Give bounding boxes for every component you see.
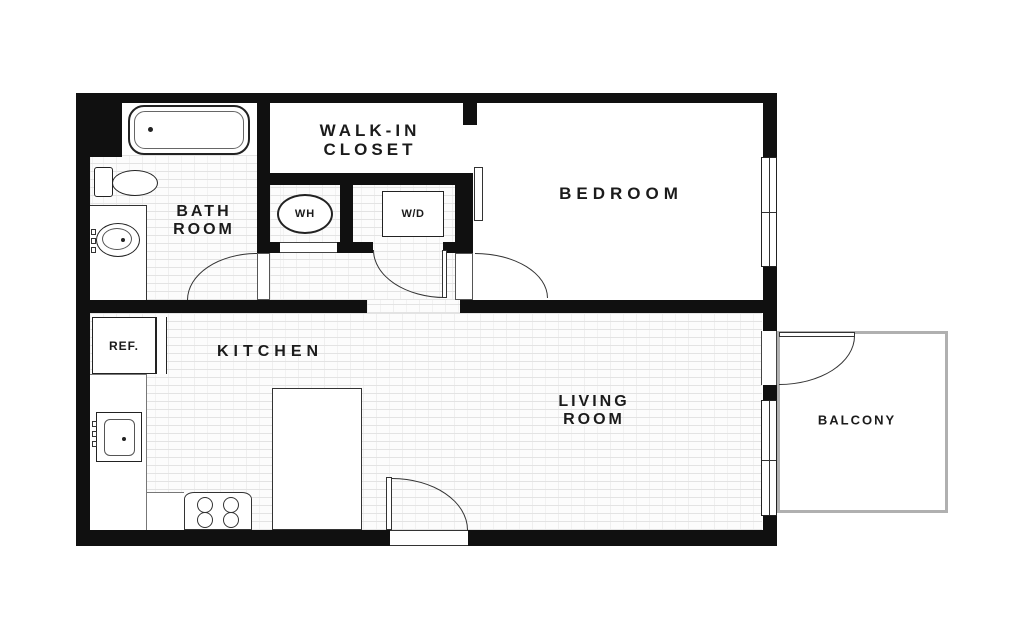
bathroom-line1: BATH <box>173 203 235 221</box>
bath-sink-knob-2 <box>91 238 96 244</box>
bathtub <box>128 105 250 155</box>
wall-closet-stub <box>463 103 477 125</box>
wall-closets-bottom-b <box>337 242 373 253</box>
entry-door-leaf <box>386 477 392 530</box>
bathroom-sink-basin <box>102 228 132 250</box>
bathroom-door-jamb <box>257 253 270 300</box>
kitchen-sink-knob-1 <box>92 421 97 427</box>
wall-corner-chunk <box>90 103 122 157</box>
refrigerator-label: REF. <box>109 339 139 353</box>
living-line1: LIVING <box>558 393 629 411</box>
wh-closet-opening <box>280 242 337 253</box>
balcony-door-opening <box>761 331 777 385</box>
washer-dryer-label: W/D <box>402 208 425 220</box>
bathroom-line2: ROOM <box>173 221 235 239</box>
kitchen-sink-knob-2 <box>92 431 97 437</box>
stove <box>184 492 252 530</box>
refrigerator: REF. <box>92 317 156 374</box>
bedroom-window-divider <box>762 212 776 213</box>
living-room-window <box>761 400 777 516</box>
bathroom-sink <box>96 223 140 257</box>
wall-mid-right <box>460 300 777 313</box>
bath-sink-knob-1 <box>91 229 96 235</box>
wall-closets-top <box>257 173 473 185</box>
room-label-living-room: LIVING ROOM <box>558 393 629 429</box>
room-label-kitchen: KITCHEN <box>217 343 323 361</box>
water-heater-circle: WH <box>277 194 333 234</box>
living-window-divider <box>762 460 776 461</box>
wall-closets-bottom-a <box>257 242 280 253</box>
washer-dryer-door-leaf <box>442 250 447 298</box>
living-window-pane-line <box>769 401 770 515</box>
room-label-bathroom: BATH ROOM <box>173 203 235 239</box>
room-label-balcony: BALCONY <box>818 413 896 428</box>
bath-sink-knob-3 <box>91 247 96 253</box>
kitchen-sink-basin <box>104 419 135 456</box>
walk-in-line1: WALK-IN <box>320 121 421 140</box>
room-label-bedroom: BEDROOM <box>559 184 683 204</box>
toilet-tank <box>94 167 113 197</box>
living-line2: ROOM <box>558 411 629 429</box>
kitchen-counter-bottom <box>147 492 184 530</box>
kitchen-island <box>272 388 362 530</box>
walk-in-line2: CLOSET <box>320 140 421 159</box>
water-heater-label: WH <box>295 208 315 220</box>
stove-burner-1 <box>197 497 213 513</box>
wall-left <box>76 93 90 546</box>
bathtub-drain <box>148 127 153 132</box>
wall-top <box>76 93 777 103</box>
bedroom-door-jamb <box>455 253 473 300</box>
closet-door-leaf <box>474 167 483 221</box>
toilet-bowl <box>112 170 158 196</box>
wall-wh-wd-divider <box>340 185 353 242</box>
balcony-door-leaf <box>779 332 855 337</box>
bedroom-window <box>761 157 777 267</box>
kitchen-sink <box>96 412 142 462</box>
stove-burner-4 <box>223 512 239 528</box>
stove-burner-3 <box>197 512 213 528</box>
wall-wd-right <box>455 173 473 253</box>
wall-mid-left <box>76 300 367 313</box>
entry-threshold <box>390 530 468 546</box>
hallway-opening-floor <box>367 300 460 313</box>
stove-burner-2 <box>223 497 239 513</box>
kitchen-sink-knob-3 <box>92 441 97 447</box>
bedroom-door-arc <box>475 253 548 298</box>
bathroom-sink-drain <box>121 238 125 242</box>
refrigerator-side-lines <box>156 317 167 374</box>
washer-dryer-box: W/D <box>382 191 444 237</box>
kitchen-sink-drain <box>122 437 126 441</box>
floor-plan: WH W/D REF. WALK-IN CLOSET BEDROOM BATH … <box>0 0 1024 640</box>
room-label-walk-in-closet: WALK-IN CLOSET <box>320 121 421 159</box>
